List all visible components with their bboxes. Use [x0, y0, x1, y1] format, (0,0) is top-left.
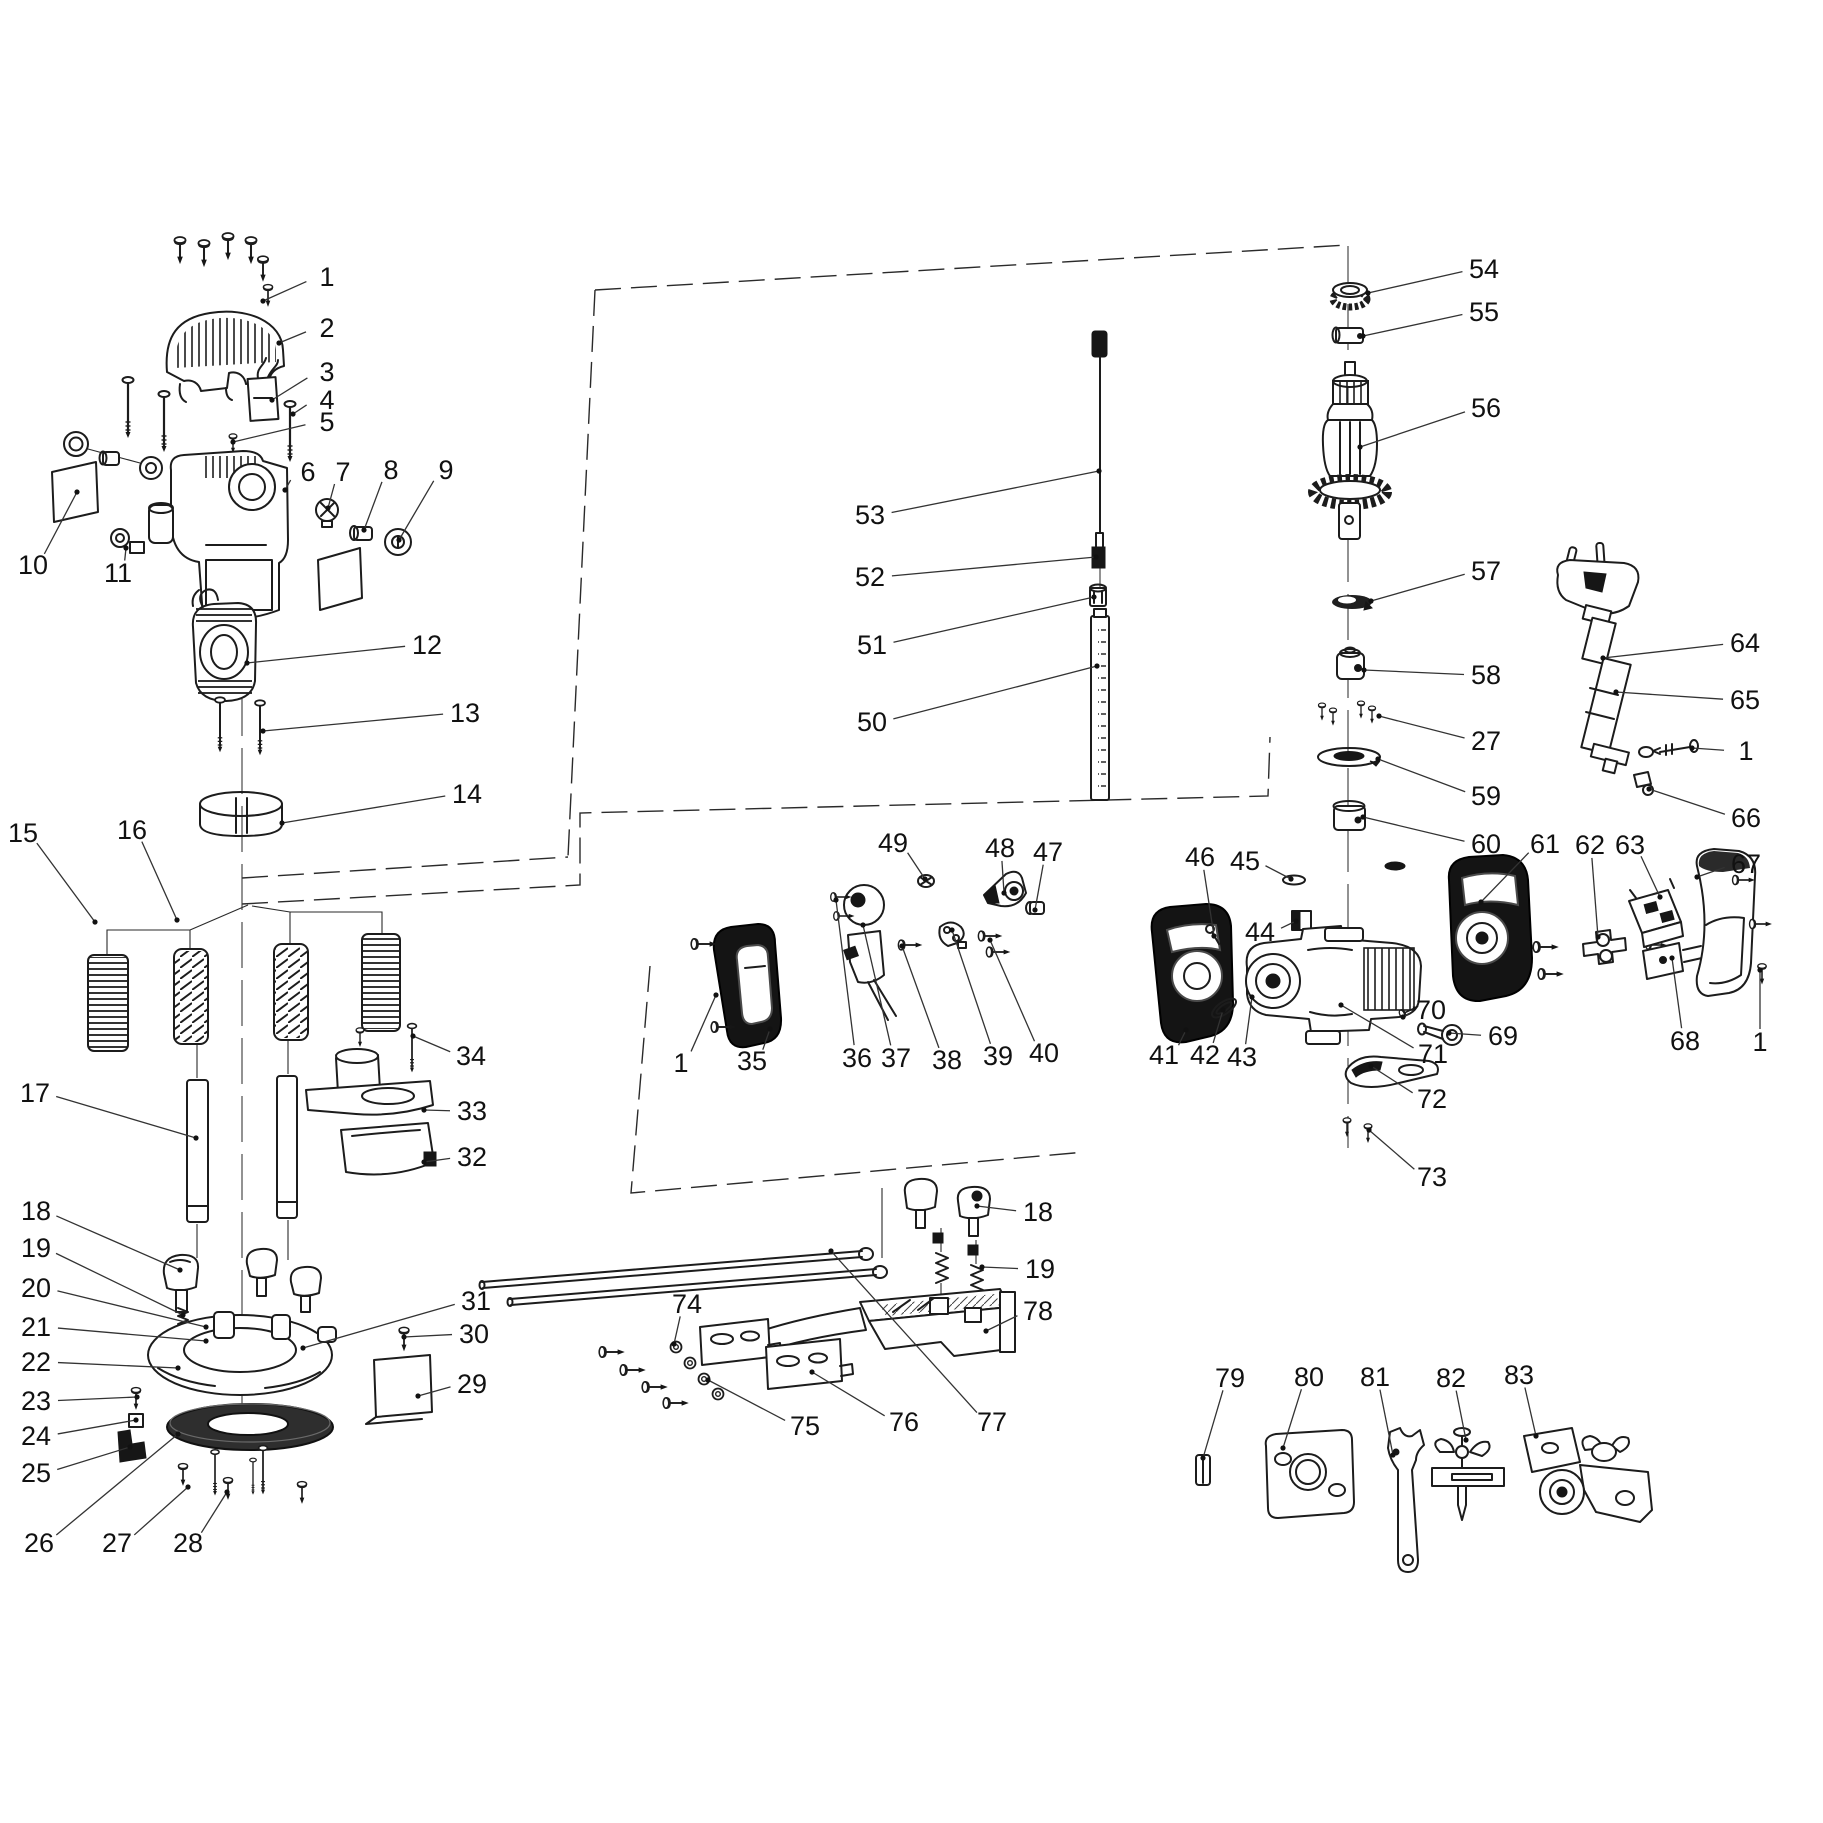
part-label-79-84: 79 — [1215, 1363, 1245, 1393]
leader-dot-72-75 — [1368, 1063, 1373, 1068]
leader-line-43-43 — [1246, 997, 1252, 1044]
part-label-30-29: 30 — [459, 1319, 489, 1349]
part-label-34-33: 34 — [456, 1041, 486, 1071]
part-label-13-12: 13 — [450, 698, 480, 728]
part-45-o-ring-b — [1385, 862, 1405, 870]
leader-dot-60-61 — [1360, 814, 1365, 819]
leader-line-52-52 — [892, 557, 1096, 576]
part-nameplate — [318, 548, 362, 610]
leader-dot-57-57 — [1368, 598, 1373, 603]
leader-dot-49-49 — [922, 876, 927, 881]
leader-dot-63-64 — [1657, 894, 1662, 899]
part-label-28-27: 28 — [173, 1528, 203, 1558]
leader-dot-83-88 — [1533, 1433, 1538, 1438]
leader-line-33-32 — [424, 1110, 450, 1111]
leader-dot-16-15 — [174, 917, 179, 922]
part-label-18-17: 18 — [21, 1196, 51, 1226]
part-29-guard-plate — [366, 1355, 432, 1424]
leader-dot-11-10 — [123, 545, 128, 550]
leader-line-23-22 — [58, 1397, 137, 1400]
part-7-brush-cap — [316, 499, 338, 527]
leader-dot-1-67 — [1689, 745, 1694, 750]
part-label-15-14: 15 — [8, 818, 38, 848]
part-label-78-83: 78 — [1023, 1296, 1053, 1326]
leader-line-55-55 — [1363, 315, 1462, 336]
leader-line-49-49 — [908, 853, 925, 879]
leader-line-54-54 — [1368, 272, 1462, 293]
leader-line-51-51 — [894, 597, 1094, 642]
part-81-wrench — [1388, 1428, 1424, 1572]
part-label-58-58: 58 — [1471, 660, 1501, 690]
parts-diagram-canvas: 1234567891011121314151617181920212223242… — [0, 0, 1823, 1823]
part-label-22-21: 22 — [21, 1347, 51, 1377]
part-label-77-82: 77 — [977, 1407, 1007, 1437]
part-label-1-0: 1 — [319, 262, 334, 292]
part-label-50-50: 50 — [857, 707, 887, 737]
part-15-spring-b — [362, 934, 400, 1031]
leader-dot-9-8 — [396, 537, 401, 542]
leader-line-53-53 — [892, 471, 1099, 513]
leader-dot-5-4 — [230, 439, 235, 444]
part-label-41-41: 41 — [1149, 1040, 1179, 1070]
part-label-80-85: 80 — [1294, 1362, 1324, 1392]
part-label-37-37: 37 — [881, 1043, 911, 1073]
leader-line-83-88 — [1525, 1388, 1536, 1436]
part-80-guide-plate — [1266, 1430, 1354, 1518]
exploded-diagram-page: 1234567891011121314151617181920212223242… — [0, 0, 1823, 1823]
leader-line-12-11 — [247, 646, 405, 663]
leader-line-25-24 — [57, 1447, 130, 1470]
part-label-46-46: 46 — [1185, 842, 1215, 872]
leader-dot-33-32 — [421, 1107, 426, 1112]
part-62-spindle-lock — [1583, 930, 1626, 964]
leader-dot-12-11 — [244, 660, 249, 665]
leader-line-62-63 — [1592, 858, 1598, 937]
leader-dot-64-65 — [1600, 655, 1605, 660]
leader-line-50-50 — [893, 666, 1097, 719]
leader-line-76-81 — [812, 1372, 885, 1416]
leader-line-16-15 — [142, 842, 177, 920]
leader-dot-61-62 — [1478, 899, 1483, 904]
plunge-base-assembly — [88, 934, 436, 1503]
leader-line-27-59 — [1379, 716, 1465, 738]
armature-column — [1313, 283, 1387, 830]
part-40-screw-b — [986, 947, 1009, 957]
part-label-49-49: 49 — [878, 828, 908, 858]
part-16-spring-a — [174, 949, 208, 1044]
part-label-16-15: 16 — [117, 815, 147, 845]
part-nut-fence-b — [968, 1245, 978, 1255]
part-57-washer — [1332, 595, 1372, 610]
leader-line-26-25 — [56, 1434, 178, 1535]
leader-dot-59-60 — [1375, 756, 1380, 761]
part-label-64-65: 64 — [1730, 628, 1760, 658]
part-32-dust-hood-lower — [341, 1123, 436, 1174]
part-label-66-68: 66 — [1731, 803, 1761, 833]
part-27-28-base-screws — [178, 1446, 306, 1503]
part-label-55-55: 55 — [1469, 297, 1499, 327]
part-label-7-6: 7 — [335, 457, 350, 487]
leader-dot-58-58 — [1361, 667, 1366, 672]
part-label-43-43: 43 — [1227, 1042, 1257, 1072]
part-label-20-19: 20 — [21, 1273, 51, 1303]
part-label-21-20: 21 — [21, 1312, 51, 1342]
power-cord-group — [1557, 543, 1698, 795]
part-61-right-grip — [1449, 855, 1532, 1001]
part-label-68-70: 68 — [1670, 1026, 1700, 1056]
leader-dot-10-9 — [74, 489, 79, 494]
part-label-81-86: 81 — [1360, 1362, 1390, 1392]
part-label-19-78: 19 — [1025, 1254, 1055, 1284]
leader-dot-20-19 — [203, 1324, 208, 1329]
part-label-76-81: 76 — [889, 1407, 919, 1437]
part-83-roller-guide — [1524, 1428, 1652, 1522]
leader-line-81-86 — [1380, 1390, 1393, 1455]
part-label-53-53: 53 — [855, 500, 885, 530]
part-label-73-76: 73 — [1417, 1162, 1447, 1192]
leader-dot-39-39 — [949, 927, 954, 932]
part-label-1-34: 1 — [673, 1048, 688, 1078]
part-55-bearing — [1333, 328, 1364, 344]
leader-line-63-64 — [1641, 856, 1660, 897]
leader-dot-74-79 — [671, 1341, 676, 1346]
part-31-router-base — [148, 1312, 336, 1395]
leader-dot-14-13 — [279, 820, 284, 825]
part-label-47-47: 47 — [1033, 837, 1063, 867]
leader-line-2-1 — [279, 332, 306, 343]
leader-line-57-57 — [1371, 574, 1465, 601]
leader-line-34-33 — [413, 1036, 450, 1052]
part-label-71-74: 71 — [1418, 1039, 1448, 1069]
leader-line-66-68 — [1649, 789, 1725, 814]
leader-dot-45-45 — [1288, 876, 1293, 881]
part-label-42-42: 42 — [1190, 1040, 1220, 1070]
leader-dot-1-71 — [1757, 967, 1762, 972]
right-grip-group — [1449, 849, 1771, 1001]
part-knob-c — [291, 1267, 321, 1312]
leader-line-58-58 — [1364, 670, 1464, 674]
part-label-19-18: 19 — [21, 1233, 51, 1263]
leader-line-38-38 — [902, 946, 939, 1048]
leader-dot-32-31 — [421, 1159, 426, 1164]
part-label-31-30: 31 — [461, 1286, 491, 1316]
part-18-knob-fence-b — [958, 1187, 990, 1236]
assembly-axis-lines — [242, 246, 1348, 1404]
leader-dot-18-77 — [974, 1203, 979, 1208]
part-1-screw-cord — [1639, 740, 1698, 757]
part-label-17-16: 17 — [20, 1078, 50, 1108]
part-label-24-23: 24 — [21, 1421, 51, 1451]
leader-line-73-76 — [1369, 1130, 1414, 1169]
leader-dot-81-86 — [1390, 1452, 1395, 1457]
leader-dot-17-16 — [193, 1135, 198, 1140]
part-label-44-44: 44 — [1245, 917, 1275, 947]
leader-dot-35-35 — [767, 1026, 772, 1031]
part-16-spring-b — [274, 944, 308, 1040]
part-53-depth-rod — [1092, 331, 1107, 549]
part-label-27-59: 27 — [1471, 726, 1501, 756]
part-label-61-62: 61 — [1530, 829, 1560, 859]
part-label-26-25: 26 — [24, 1528, 54, 1558]
part-26-sub-base — [167, 1404, 333, 1450]
part-label-29-28: 29 — [457, 1369, 487, 1399]
part-label-9-8: 9 — [438, 455, 453, 485]
leader-dot-27-26 — [185, 1484, 190, 1489]
leader-dot-4-3 — [290, 411, 295, 416]
part-label-2-1: 2 — [319, 313, 334, 343]
part-label-45-45: 45 — [1230, 846, 1260, 876]
leader-dot-37-37 — [860, 922, 865, 927]
leader-dot-52-52 — [1093, 554, 1098, 559]
part-knob-b — [247, 1249, 277, 1296]
leader-line-15-14 — [37, 843, 95, 922]
leader-dot-76-81 — [809, 1369, 814, 1374]
part-label-33-32: 33 — [457, 1096, 487, 1126]
leader-dot-26-25 — [175, 1431, 180, 1436]
leader-line-39-39 — [952, 930, 990, 1044]
part-label-52-52: 52 — [855, 562, 885, 592]
part-label-35-35: 35 — [737, 1046, 767, 1076]
part-label-82-87: 82 — [1436, 1363, 1466, 1393]
leader-dot-62-63 — [1595, 934, 1600, 939]
leader-dot-71-74 — [1338, 1002, 1343, 1007]
leader-dot-54-54 — [1365, 290, 1370, 295]
leader-line-13-12 — [263, 714, 443, 731]
leader-dot-6-5 — [282, 487, 287, 492]
part-label-18-77: 18 — [1023, 1197, 1053, 1227]
leader-dot-1-0 — [260, 298, 265, 303]
part-50-scale-rod — [1091, 609, 1109, 800]
part-12-stator — [193, 589, 256, 701]
part-18-knob-left — [164, 1255, 198, 1312]
part-label-6-5: 6 — [300, 457, 315, 487]
leader-dot-67-69 — [1694, 874, 1699, 879]
part-label-11-10: 11 — [104, 558, 132, 588]
part-label-65-66: 65 — [1730, 685, 1760, 715]
leader-line-9-8 — [399, 481, 434, 540]
part-1-screws — [174, 233, 272, 306]
leader-dot-44-44 — [1293, 918, 1298, 923]
part-label-74-79: 74 — [672, 1289, 702, 1319]
leader-line-8-7 — [364, 482, 382, 530]
part-label-51-51: 51 — [857, 630, 887, 660]
leader-dot-36-36 — [833, 897, 838, 902]
part-48-lock-lever — [984, 872, 1026, 906]
leader-dot-69-72 — [1446, 1030, 1451, 1035]
part-66-cord-clamp — [1634, 772, 1653, 795]
leader-line-69-72 — [1449, 1033, 1481, 1035]
leader-dot-3-2 — [269, 397, 274, 402]
part-6-motor-housing — [149, 451, 288, 619]
leader-dot-27-59 — [1376, 713, 1381, 718]
leader-line-28-27 — [201, 1492, 227, 1533]
leader-dot-82-87 — [1463, 1437, 1468, 1442]
leader-dot-7-6 — [325, 505, 330, 510]
part-label-38-38: 38 — [932, 1045, 962, 1075]
part-41-left-grip — [1152, 904, 1233, 1042]
part-label-3-2: 3 — [319, 357, 334, 387]
leader-dot-40-40 — [987, 937, 992, 942]
leader-dot-41-41 — [1183, 1027, 1188, 1032]
leader-dot-1-34 — [713, 992, 718, 997]
leader-dot-31-30 — [300, 1345, 305, 1350]
leader-line-40-40 — [990, 940, 1035, 1041]
leader-dot-51-51 — [1091, 594, 1096, 599]
part-58-spindle-nut — [1337, 648, 1364, 680]
part-56-armature — [1313, 362, 1387, 539]
part-label-14-13: 14 — [452, 779, 482, 809]
leader-dot-42-42 — [1220, 1007, 1225, 1012]
leader-dot-70-73 — [1400, 1014, 1405, 1019]
part-screw-62a — [1533, 942, 1557, 952]
leader-dot-66-68 — [1646, 786, 1651, 791]
part-14-clamp-ring — [200, 792, 282, 836]
leader-line-30-29 — [404, 1335, 452, 1337]
leader-dot-18-17 — [177, 1267, 182, 1272]
part-label-70-73: 70 — [1416, 995, 1446, 1025]
leader-line-19-78 — [982, 1267, 1018, 1269]
part-39-cam-lever — [939, 923, 966, 949]
leader-dot-79-84 — [1200, 1455, 1205, 1460]
leader-line-60-61 — [1363, 817, 1465, 841]
part-label-72-75: 72 — [1417, 1084, 1447, 1114]
part-82-trammel-point — [1432, 1428, 1504, 1520]
leader-dot-43-43 — [1249, 994, 1254, 999]
leader-dot-47-47 — [1032, 907, 1037, 912]
leader-dot-68-70 — [1669, 955, 1674, 960]
part-label-62-63: 62 — [1575, 830, 1605, 860]
part-33-dust-hood-upper — [306, 1049, 433, 1115]
part-label-8-7: 8 — [383, 455, 398, 485]
leader-line-59-60 — [1378, 759, 1465, 792]
part-65-cord-sleeve — [1581, 658, 1630, 754]
part-label-25-24: 25 — [21, 1458, 51, 1488]
depth-stop-rod-group — [1090, 331, 1109, 800]
part-screw-67b — [1750, 919, 1771, 928]
part-15-spring-a — [88, 955, 128, 1051]
part-label-10-9: 10 — [18, 550, 48, 580]
part-54-bearing-cap — [1333, 283, 1367, 307]
leader-dot-2-1 — [276, 340, 281, 345]
part-label-27-26: 27 — [102, 1528, 132, 1558]
module-boundary-lines — [242, 245, 1347, 1193]
part-label-56-56: 56 — [1471, 393, 1501, 423]
leader-dot-25-24 — [127, 1444, 132, 1449]
leader-dot-19-78 — [979, 1264, 984, 1269]
part-label-67-69: 67 — [1731, 849, 1761, 879]
leader-dot-75-80 — [705, 1377, 710, 1382]
leader-line-65-66 — [1616, 692, 1723, 699]
leader-line-64-65 — [1603, 644, 1723, 658]
part-label-57-57: 57 — [1471, 556, 1501, 586]
part-18-knob-fence-a — [905, 1179, 937, 1228]
leader-dot-19-18 — [180, 1312, 185, 1317]
leader-dot-50-50 — [1094, 663, 1099, 668]
accessories-row — [1196, 1428, 1652, 1572]
leader-line-79-84 — [1203, 1390, 1223, 1458]
leader-dot-13-12 — [260, 728, 265, 733]
leader-line-14-13 — [282, 796, 445, 823]
leader-dot-15-14 — [92, 919, 97, 924]
leader-dot-77-82 — [828, 1248, 833, 1253]
part-label-39-39: 39 — [983, 1041, 1013, 1071]
leader-dot-22-21 — [175, 1365, 180, 1370]
part-60-collar — [1334, 801, 1366, 830]
part-label-1-67: 1 — [1738, 736, 1753, 766]
part-label-23-22: 23 — [21, 1386, 51, 1416]
part-1-screw-right — [1758, 964, 1766, 984]
leader-dot-29-28 — [415, 1393, 420, 1398]
part-label-59-60: 59 — [1471, 781, 1501, 811]
leader-dot-46-46 — [1211, 933, 1216, 938]
part-label-12-11: 12 — [412, 630, 442, 660]
leader-dot-38-38 — [899, 943, 904, 948]
part-label-36-36: 36 — [842, 1043, 872, 1073]
part-59-large-washer — [1318, 748, 1380, 766]
leader-dot-8-7 — [361, 527, 366, 532]
leader-line-74-79 — [674, 1316, 680, 1344]
part-label-75-80: 75 — [790, 1411, 820, 1441]
leader-line-5-4 — [233, 425, 305, 442]
part-nut-fence-a — [933, 1233, 943, 1243]
part-label-1-71: 1 — [1752, 1027, 1767, 1057]
part-label-54-54: 54 — [1469, 254, 1499, 284]
motor-head-assembly — [52, 233, 411, 836]
leader-dot-21-20 — [203, 1338, 208, 1343]
part-label-83-88: 83 — [1504, 1360, 1534, 1390]
part-label-5-4: 5 — [319, 407, 334, 437]
part-screw-62b — [1538, 969, 1562, 979]
part-13-bolts — [215, 697, 265, 755]
leader-dot-78-83 — [983, 1328, 988, 1333]
leader-dot-53-53 — [1096, 468, 1101, 473]
leader-dot-65-66 — [1613, 689, 1618, 694]
leader-dot-24-23 — [133, 1417, 138, 1422]
leader-dot-28-27 — [224, 1489, 229, 1494]
part-label-69-72: 69 — [1488, 1021, 1518, 1051]
leader-dot-80-85 — [1280, 1445, 1285, 1450]
part-1-screw-handle-a — [691, 939, 715, 949]
leader-dot-55-55 — [1360, 333, 1365, 338]
part-label-48-48: 48 — [985, 833, 1015, 863]
leader-dot-73-76 — [1366, 1127, 1371, 1132]
part-8-bushing — [350, 526, 372, 540]
leader-line-17-16 — [56, 1096, 196, 1138]
edge-guide-assembly — [480, 1179, 1016, 1408]
part-27-screws-right — [1318, 701, 1375, 725]
part-label-63-64: 63 — [1615, 830, 1645, 860]
part-label-40-40: 40 — [1029, 1038, 1059, 1068]
leader-dot-48-48 — [1001, 890, 1006, 895]
leader-line-45-45 — [1265, 866, 1291, 879]
leader-dot-56-56 — [1357, 444, 1362, 449]
leader-dot-23-22 — [134, 1394, 139, 1399]
leader-dot-30-29 — [401, 1334, 406, 1339]
part-label-32-31: 32 — [457, 1142, 487, 1172]
leader-dot-34-33 — [410, 1033, 415, 1038]
part-label-60-61: 60 — [1471, 829, 1501, 859]
